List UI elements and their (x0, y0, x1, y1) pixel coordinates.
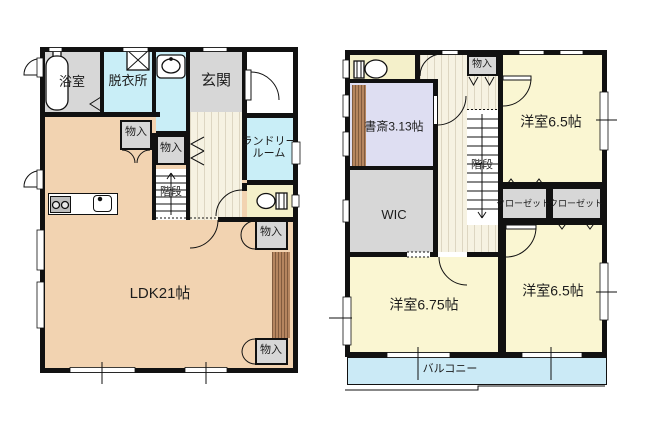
wall (152, 133, 156, 220)
label-entrance: 玄関 (201, 73, 231, 89)
wall (100, 52, 104, 112)
wall (498, 225, 506, 352)
wall (345, 50, 350, 357)
hallway-1f (190, 112, 242, 220)
wall (247, 180, 293, 185)
wall (152, 52, 156, 115)
wall (40, 47, 45, 373)
wall (40, 47, 298, 52)
awning-window-arc (24, 59, 37, 75)
wall (242, 52, 247, 117)
hallway-2f-bottom (467, 225, 498, 252)
wall (40, 368, 298, 373)
wall (345, 352, 607, 357)
wall (350, 79, 438, 83)
sink-icon (93, 195, 112, 212)
wood-louver-strip (272, 252, 290, 338)
wall (345, 50, 607, 55)
label-storage-b: 物入 (160, 143, 182, 155)
awning-window-arc (24, 171, 37, 187)
wall (242, 183, 247, 191)
label-bedroom-sw: 洋室6.75帖 (389, 298, 458, 313)
label-bedroom-se: 洋室6.5帖 (522, 284, 583, 299)
label-bedroom-ne: 洋室6.5帖 (520, 115, 581, 130)
label-stairs-1f: 階段 (160, 187, 182, 199)
floorplan-image: 浴室 脱衣所 玄関 物入 物入 階段 ランドリールーム LDK21帖 物入 物入… (0, 0, 654, 441)
study-door-leaf (433, 95, 438, 125)
wall (242, 113, 293, 118)
stove-icon (50, 196, 71, 213)
label-bath: 浴室 (59, 75, 85, 89)
label-closet-b: クローゼット (549, 199, 603, 208)
label-laundry: ランドリールーム (240, 136, 298, 159)
wall (415, 55, 420, 81)
wall (499, 220, 602, 225)
wall (350, 166, 433, 170)
label-closet-a: クローゼット (496, 199, 550, 208)
label-wic: WIC (381, 208, 406, 222)
hallway-2f-landing (467, 75, 498, 110)
label-storage-2f: 物入 (472, 60, 492, 71)
label-storage-d: 物入 (260, 345, 282, 357)
entrance-porch (247, 52, 293, 113)
label-stairs-2f: 階段 (471, 160, 493, 172)
label-ldk: LDK21帖 (130, 286, 191, 302)
door-gap (438, 252, 467, 257)
wall (156, 131, 186, 135)
balcony-outline (345, 386, 605, 390)
wall (44, 112, 160, 117)
label-study: 書斎3.13帖 (364, 121, 423, 134)
room-vanity-corridor (156, 52, 186, 133)
label-balcony: バルコニー (423, 364, 478, 376)
label-storage-c: 物入 (260, 227, 282, 239)
wall (218, 217, 293, 222)
wic-opening (407, 252, 430, 257)
label-storage-a: 物入 (125, 127, 147, 139)
room-toilet-1f (247, 185, 293, 217)
label-dressing: 脱衣所 (108, 74, 147, 88)
wall (293, 47, 298, 373)
wall (186, 52, 190, 220)
